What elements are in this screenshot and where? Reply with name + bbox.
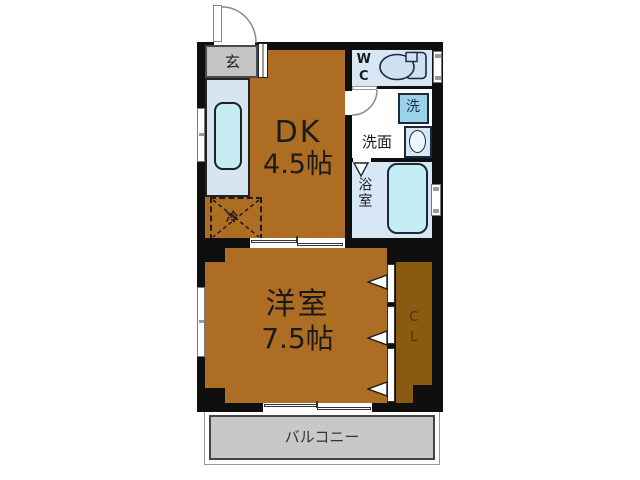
western-name-label: 洋室 (230, 288, 365, 321)
pillar-closet-bottom (413, 385, 443, 412)
entrance-door-arc-icon (222, 5, 258, 44)
laundry-space: 洗 (398, 93, 429, 124)
slide-arrow-icon-2 (367, 330, 388, 346)
wall-bottom-left (197, 403, 263, 412)
slide-arrow-icon-1 (367, 274, 388, 290)
washbasin-icon (404, 126, 432, 158)
bathroom-label: 浴室 (356, 177, 371, 209)
wall-top-main (255, 42, 443, 50)
washroom-label: 洗面 (362, 134, 392, 151)
dk-size-label: 4.5帖 (250, 150, 346, 180)
washroom-door-arc-icon (352, 90, 379, 117)
wall-dk-water (345, 50, 352, 238)
laundry-label: 洗 (406, 100, 420, 115)
wc-window-icon (433, 51, 442, 83)
wall-left-1 (197, 50, 205, 108)
bathroom-window-icon (431, 184, 441, 216)
kitchen-window-icon (197, 108, 205, 162)
wall-left-2 (197, 162, 205, 242)
closet-sliding-door (387, 262, 396, 405)
western-size-label: 7.5帖 (230, 324, 365, 355)
closet-label: CL (406, 310, 420, 350)
floorplan-canvas: バルコニー 冷 洗 玄 (0, 0, 640, 480)
pillar-western-topleft (197, 240, 225, 262)
pillar-closet-top (387, 242, 432, 262)
genkan-label: 玄 (225, 54, 240, 71)
western-window-icon (197, 287, 205, 357)
genkan-area: 玄 (205, 45, 258, 78)
wc-label: WC (356, 52, 370, 86)
dk-name-label: DK (250, 116, 346, 149)
refrigerator-space: 冷 (210, 197, 262, 240)
bathtub-icon (387, 163, 428, 234)
balcony-label: バルコニー (209, 429, 435, 446)
washroom-door-gap (345, 91, 352, 115)
bathroom-folding-door-icon (353, 162, 370, 178)
genkan-step-divider (258, 43, 268, 78)
slide-arrow-icon-3 (367, 381, 388, 397)
refrigerator-label: 冷 (226, 211, 238, 224)
sliding-door-dk-western (250, 238, 345, 248)
sliding-window-balcony (263, 403, 372, 412)
kitchen-sink-icon (214, 102, 242, 170)
toilet-icon (376, 51, 428, 84)
entrance-door-leaf (213, 5, 222, 42)
